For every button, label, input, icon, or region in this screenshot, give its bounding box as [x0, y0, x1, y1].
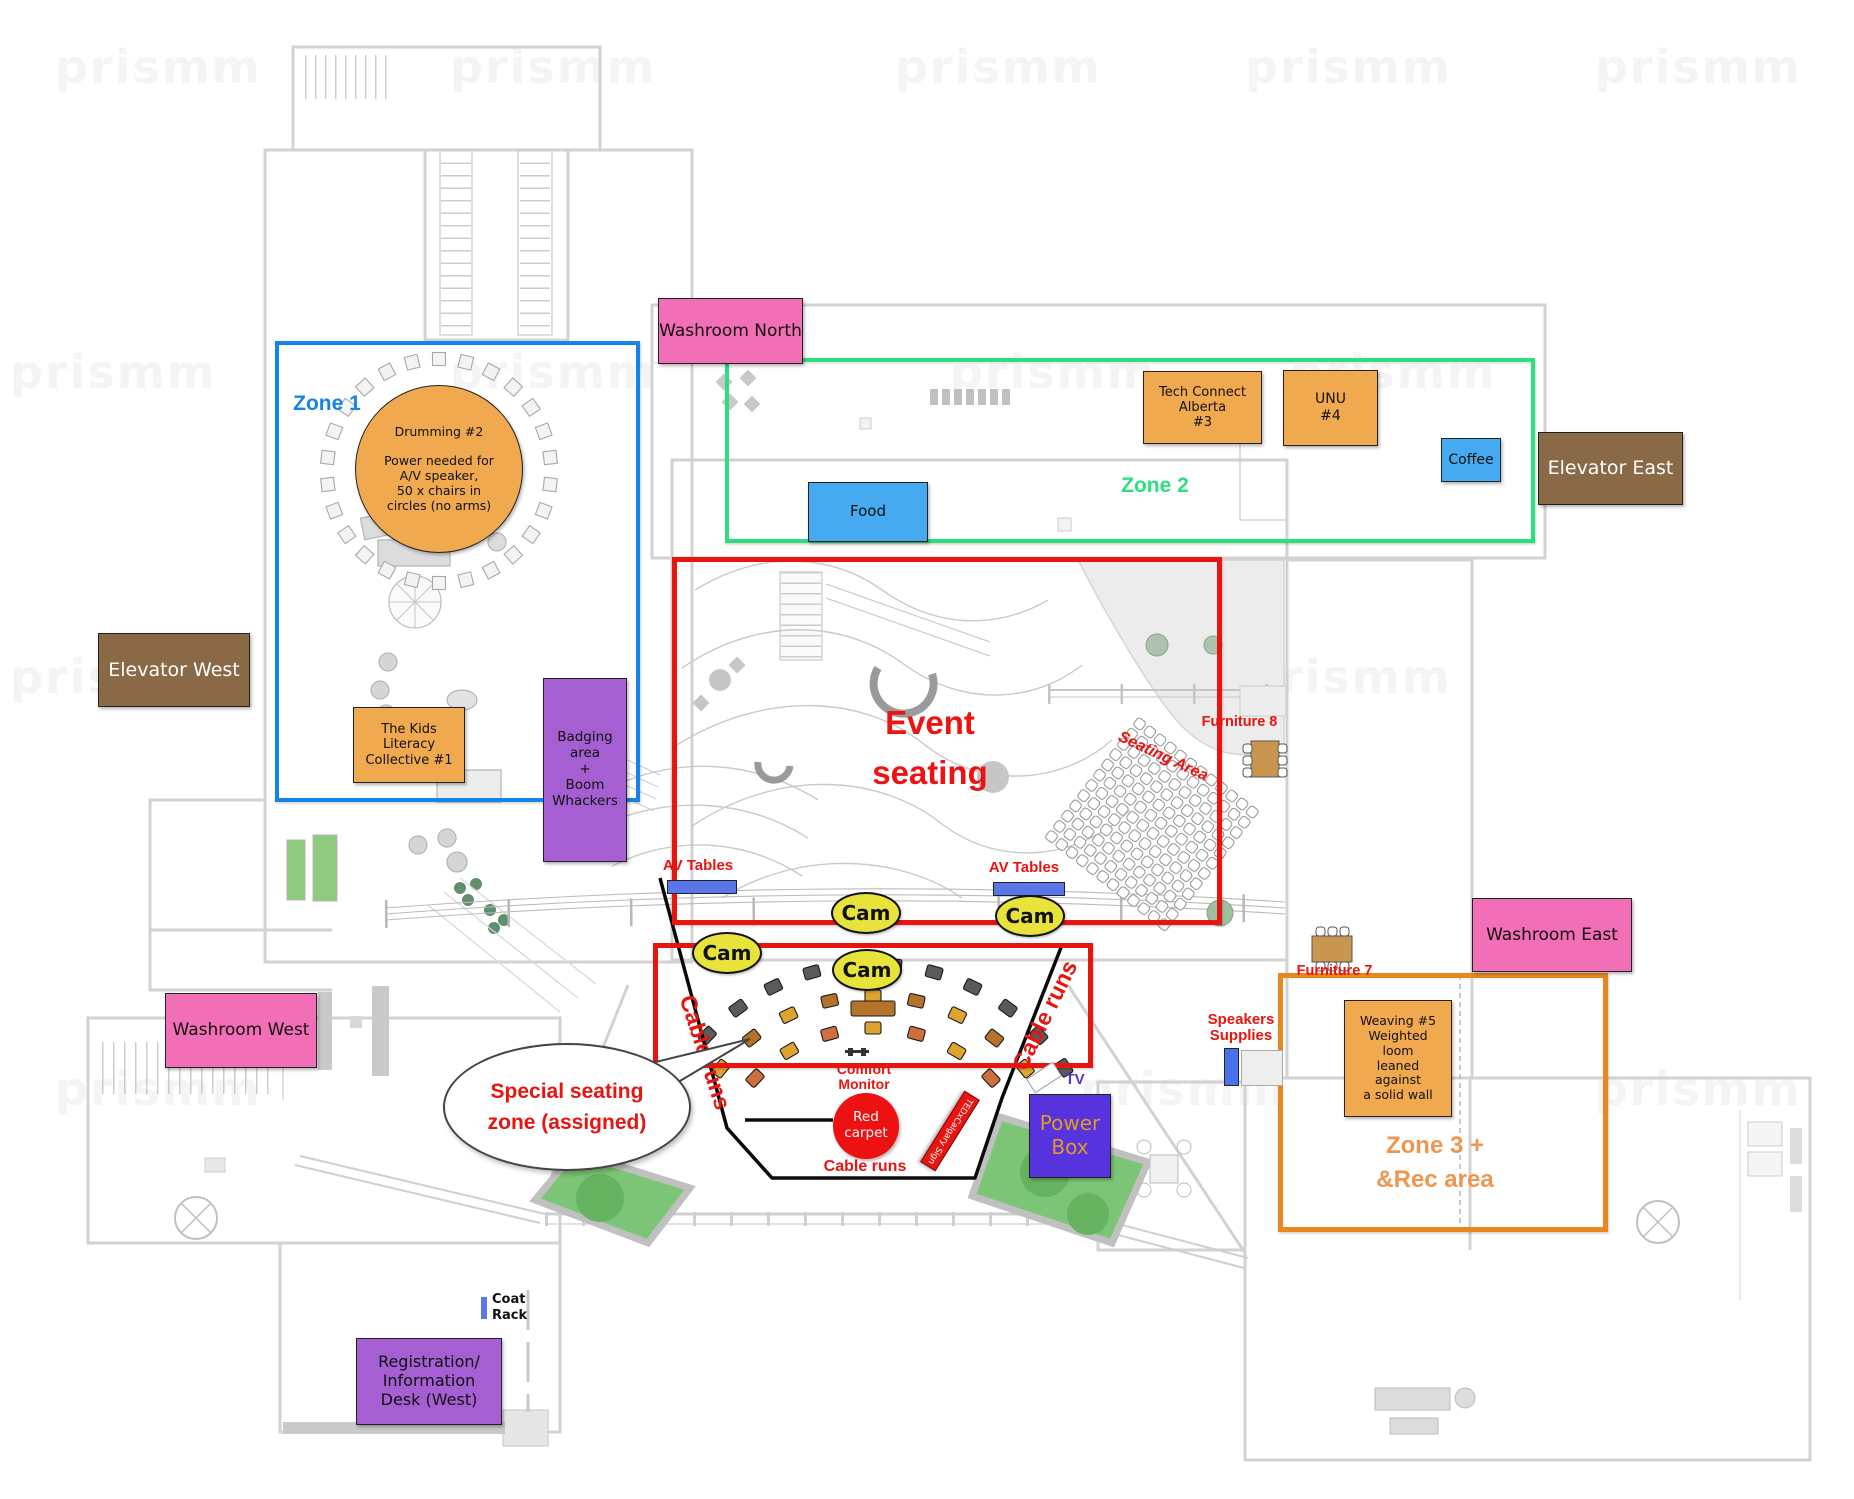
furniture8-label[interactable]: Furniture 8 — [1197, 715, 1282, 731]
cam-marker[interactable]: Cam — [832, 949, 902, 991]
unu-box[interactable]: UNU #4 — [1283, 370, 1378, 446]
zone3-label-line2[interactable]: &Rec area — [1355, 1166, 1515, 1194]
cam-label: Cam — [841, 901, 890, 925]
cam-marker[interactable]: Cam — [995, 895, 1065, 937]
zone3-label-line1[interactable]: Zone 3 + — [1360, 1132, 1510, 1160]
coffee-box[interactable]: Coffee — [1441, 438, 1501, 482]
elevator-east-box[interactable]: Elevator East — [1538, 432, 1683, 505]
speakers-supplies-label[interactable]: Speakers Supplies — [1196, 1012, 1286, 1044]
furniture7-label[interactable]: Furniture 7 — [1292, 964, 1377, 980]
speakers-supplies-crate[interactable] — [1224, 1048, 1239, 1086]
badging-box[interactable]: Badging area + Boom Whackers — [543, 678, 627, 862]
av-table-bar-left[interactable] — [667, 880, 737, 894]
cam-label: Cam — [1005, 904, 1054, 928]
cam-label: Cam — [702, 941, 751, 965]
zone2-label[interactable]: Zone 2 — [1095, 474, 1215, 498]
cam-marker[interactable]: Cam — [831, 892, 901, 934]
zone1-label[interactable]: Zone 1 — [282, 392, 372, 416]
drumming-circle[interactable]: Drumming #2 Power needed for A/V speaker… — [355, 385, 523, 553]
washroom-north-box[interactable]: Washroom North — [658, 298, 803, 364]
special-seating-text: Special seating zone (assigned) — [488, 1076, 647, 1139]
weaving-box[interactable]: Weaving #5 Weighted loom leaned against … — [1344, 1000, 1452, 1117]
cable-runs-label-bottom[interactable]: Cable runs — [815, 1158, 915, 1175]
av-tables-label-left[interactable]: AV Tables — [648, 858, 748, 874]
elevator-west-box[interactable]: Elevator West — [98, 633, 250, 707]
comfort-monitor-icon — [845, 1050, 869, 1053]
coat-rack-label[interactable]: Coat Rack — [492, 1292, 542, 1323]
av-tables-label-right[interactable]: AV Tables — [974, 860, 1074, 876]
kids-literacy-box[interactable]: The Kids Literacy Collective #1 — [353, 707, 465, 783]
event-seating-title[interactable]: Event seating — [855, 698, 1005, 797]
coat-rack-icon[interactable] — [481, 1297, 487, 1319]
special-seating-bubble[interactable]: Special seating zone (assigned) — [443, 1043, 691, 1171]
washroom-east-box[interactable]: Washroom East — [1472, 898, 1632, 972]
tech-connect-box[interactable]: Tech Connect Alberta #3 — [1143, 371, 1262, 444]
food-box[interactable]: Food — [808, 482, 928, 542]
speakers-desk — [1241, 1050, 1283, 1086]
registration-desk-box[interactable]: Registration/ Information Desk (West) — [356, 1338, 502, 1425]
cam-marker[interactable]: Cam — [692, 932, 762, 974]
red-carpet-circle[interactable]: Red carpet — [833, 1093, 899, 1159]
comfort-monitor-label[interactable]: Comfort Monitor — [814, 1062, 914, 1092]
power-box[interactable]: Power Box — [1029, 1094, 1111, 1178]
tv-label[interactable]: TV — [1055, 1071, 1095, 1088]
av-table-bar-right[interactable] — [993, 882, 1065, 896]
washroom-west-box[interactable]: Washroom West — [165, 993, 317, 1068]
event-floor-plan: { "watermark": "prismm", "colors": { "zo… — [0, 0, 1854, 1499]
cam-label: Cam — [842, 958, 891, 982]
